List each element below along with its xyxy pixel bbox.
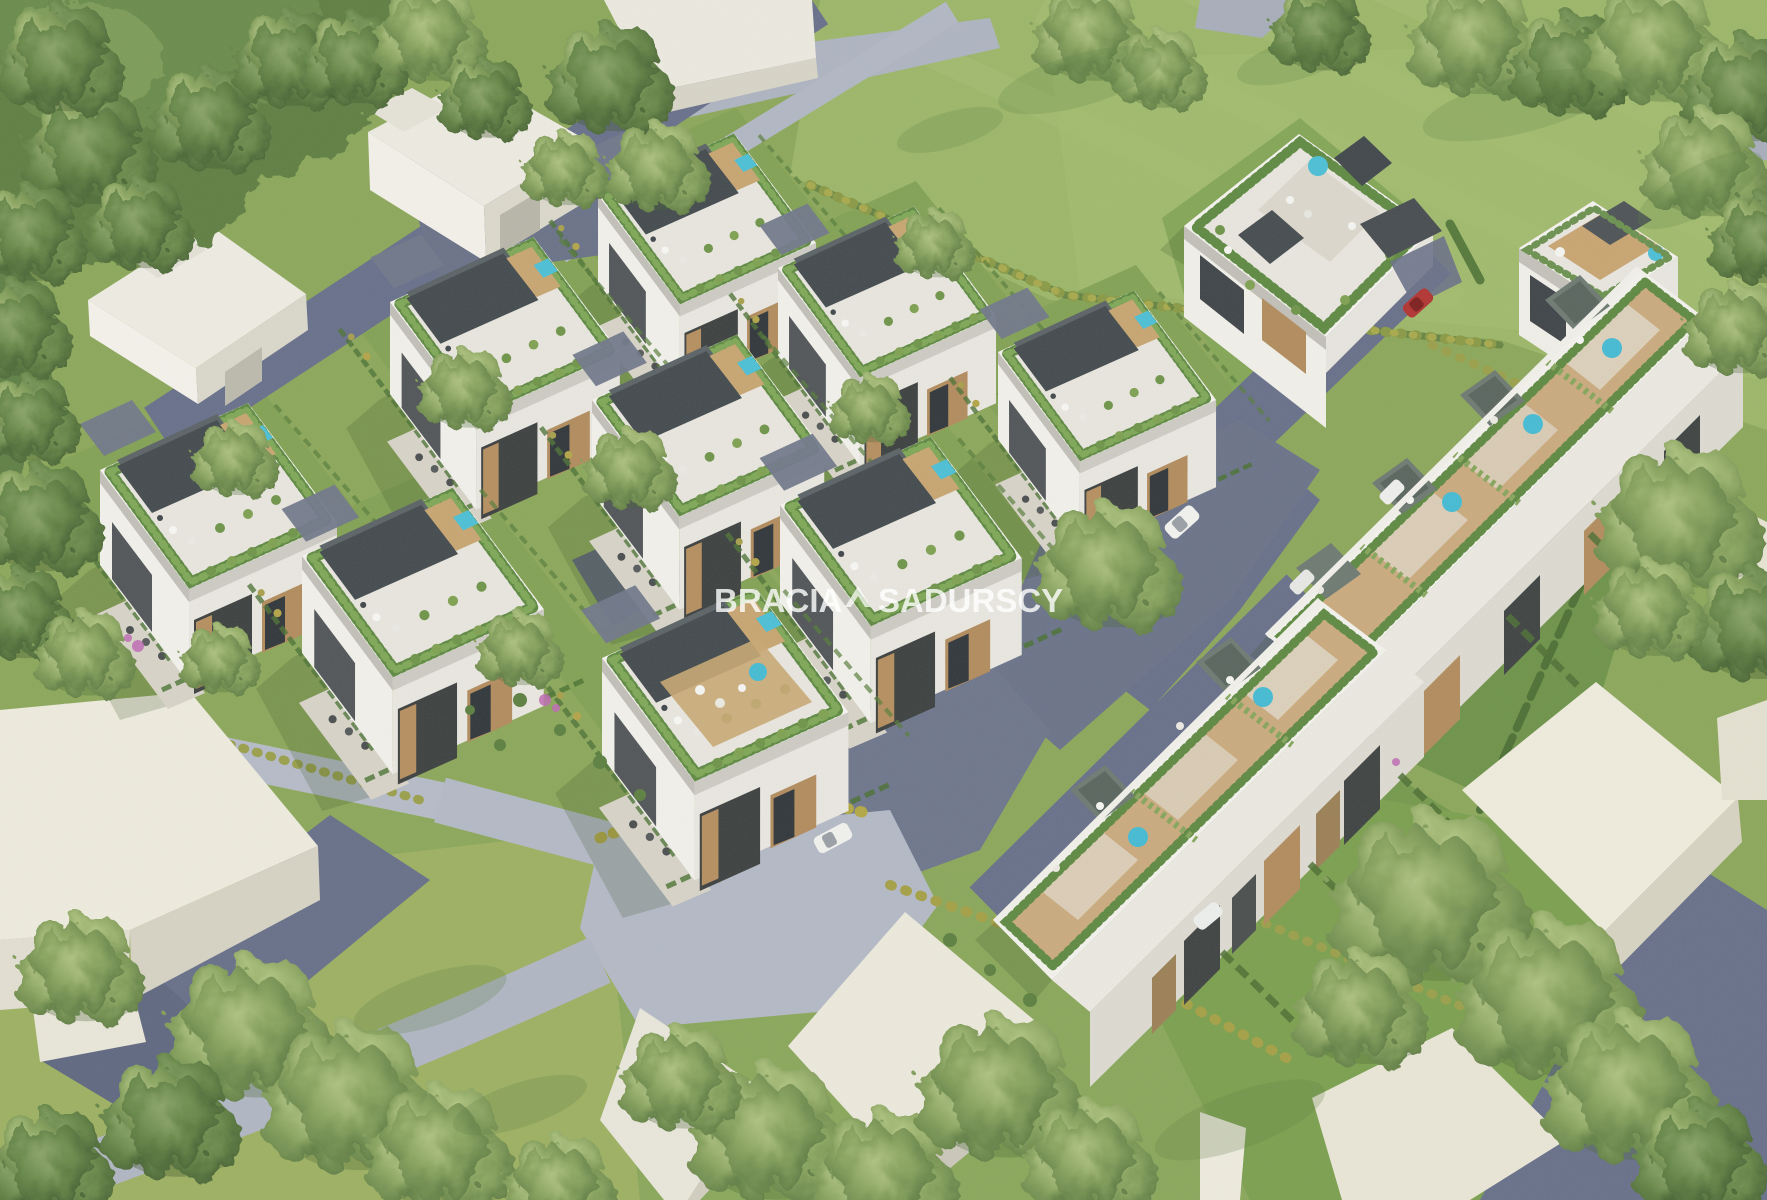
- svg-text:SADURSCY: SADURSCY: [878, 582, 1063, 619]
- svg-text:BRACIA: BRACIA: [714, 582, 842, 619]
